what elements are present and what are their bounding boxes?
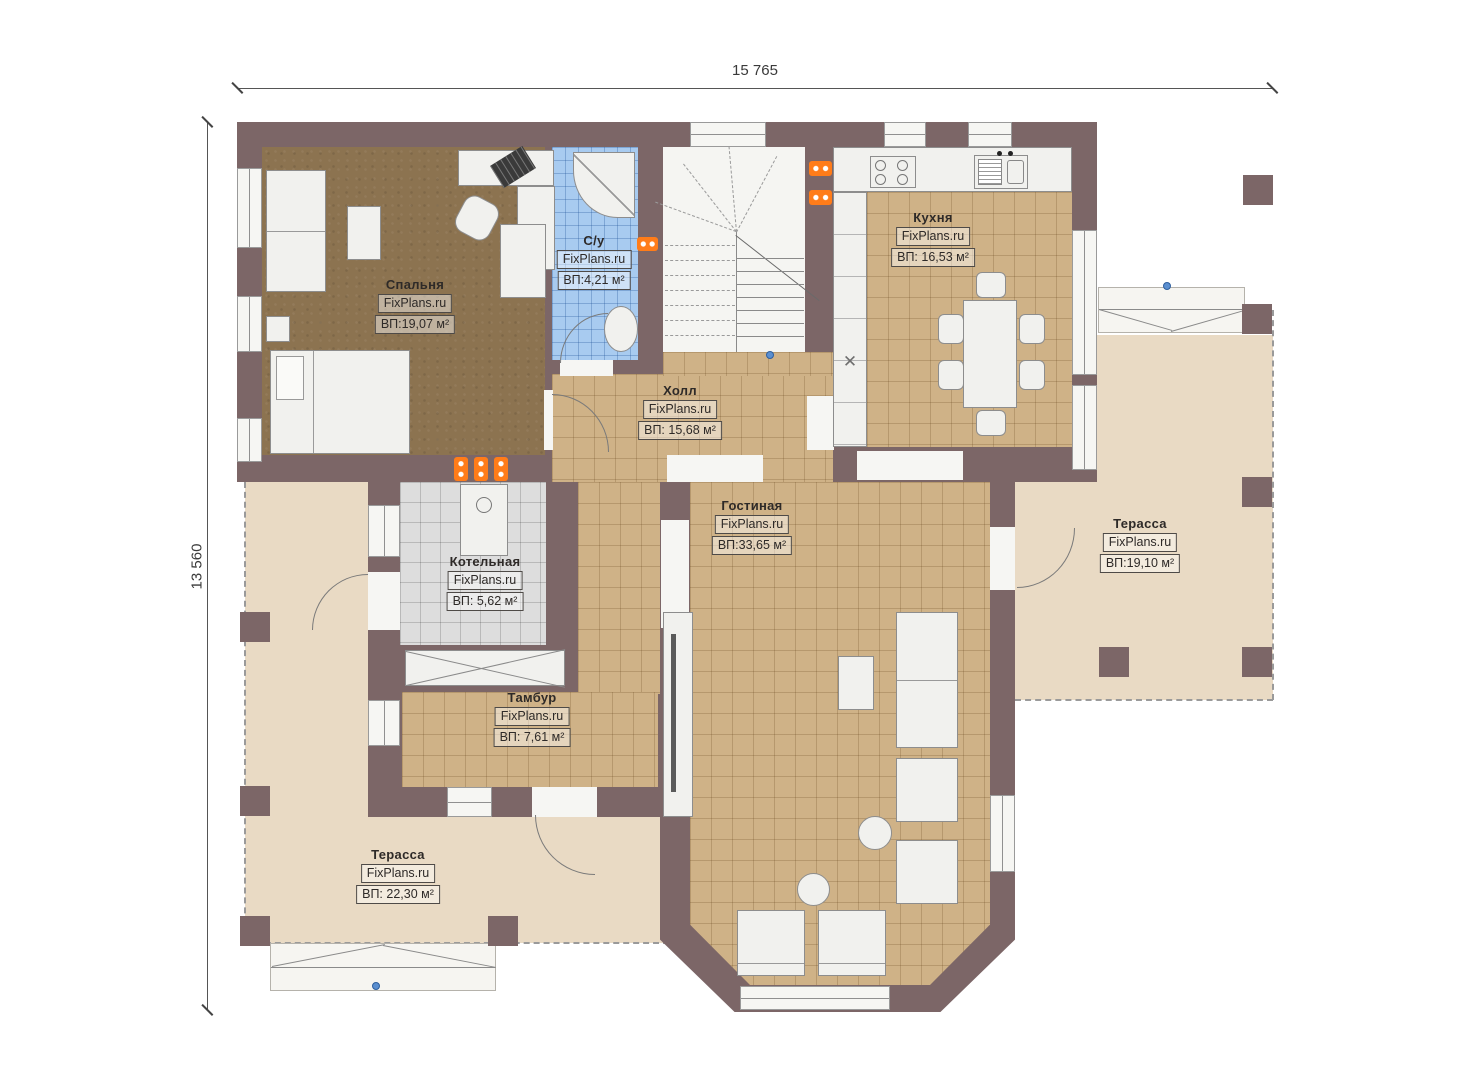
step-line (736, 323, 804, 324)
terrace-left-floor (245, 482, 368, 943)
burner (897, 174, 908, 185)
staircase-steps (663, 147, 805, 352)
pillar (1243, 175, 1273, 205)
room-name: Тамбур (494, 690, 571, 705)
terrace-edge (1272, 310, 1274, 700)
pillar (488, 916, 518, 946)
watermark: FixPlans.ru (557, 250, 632, 269)
opening-hall-kitchen (807, 396, 834, 450)
room-label-bedroom: Спальня FixPlans.ru ВП:19,07 м² (375, 277, 455, 334)
watermark: FixPlans.ru (361, 864, 436, 883)
window (1072, 385, 1097, 470)
room-name: Котельная (447, 554, 524, 569)
boiler-dial (476, 497, 492, 513)
burner (897, 160, 908, 171)
pillar (240, 612, 270, 642)
terrace-steps-east (1098, 287, 1245, 333)
door-opening-terrace (990, 527, 1015, 590)
bed (270, 350, 410, 454)
watermark: FixPlans.ru (643, 400, 718, 419)
dimension-height-label: 13 560 (189, 517, 206, 617)
dining-chair (976, 410, 1006, 436)
sink-bowl (1007, 160, 1024, 184)
room-name: Спальня (375, 277, 455, 292)
table-bedroom (347, 206, 381, 260)
step-line (1099, 309, 1245, 310)
room-area: ВП: 5,62 м² (447, 592, 524, 611)
armchair (737, 910, 805, 976)
window (237, 296, 262, 352)
step-line (383, 945, 496, 968)
window (990, 795, 1015, 872)
pillar (1099, 647, 1129, 677)
room-label-tambour: Тамбур FixPlans.ru ВП: 7,61 м² (494, 690, 571, 747)
step-line (736, 297, 804, 298)
step-line (665, 290, 735, 291)
floor-plan: 15 765 13 560 (0, 0, 1474, 1080)
window (368, 505, 400, 557)
radiator (809, 161, 832, 176)
faucet-dot (997, 151, 1002, 156)
floor-hall-corridor (578, 482, 660, 694)
window (368, 700, 400, 746)
window (690, 122, 766, 147)
wardrobe-bedroom (500, 224, 546, 298)
room-area: ВП:4,21 м² (557, 271, 630, 290)
built-in-wardrobe (405, 650, 565, 686)
kitchen-sink (974, 155, 1028, 189)
sofa-living (896, 612, 958, 748)
winder-line (729, 146, 737, 232)
round-table (797, 873, 830, 906)
bay-window (740, 986, 890, 1010)
stair-divider (736, 232, 737, 352)
step-line (736, 258, 804, 259)
room-name: Гостиная (712, 498, 792, 513)
radiator (454, 457, 468, 481)
room-label-terrace-left: Терасса FixPlans.ru ВП: 22,30 м² (356, 847, 440, 904)
wardrobe-cross-line (406, 649, 565, 686)
burner (875, 174, 886, 185)
pillar (1242, 304, 1272, 334)
pillar (240, 916, 270, 946)
room-label-boiler: Котельная FixPlans.ru ВП: 5,62 м² (447, 554, 524, 611)
wardrobe-cross-line (406, 651, 565, 688)
watermark: FixPlans.ru (378, 294, 453, 313)
marker-dot (766, 351, 774, 359)
step-line (665, 335, 735, 336)
watermark: FixPlans.ru (896, 227, 971, 246)
round-table (858, 816, 892, 850)
room-label-terrace-right: Терасса FixPlans.ru ВП:19,10 м² (1100, 516, 1180, 573)
watermark: FixPlans.ru (448, 571, 523, 590)
armchair (818, 910, 886, 976)
step-line (272, 944, 385, 967)
window (1072, 230, 1097, 375)
dining-chair (1019, 360, 1045, 390)
room-area: ВП:19,07 м² (375, 315, 455, 334)
step-line (665, 245, 735, 246)
room-name: Терасса (1100, 516, 1180, 531)
window (237, 168, 262, 248)
sink-bathroom (604, 306, 638, 352)
opening-hall-living (667, 455, 763, 482)
step-line (271, 967, 495, 968)
dining-chair (938, 314, 964, 344)
dimension-width-label: 15 765 (695, 62, 815, 79)
room-area: ВП: 7,61 м² (494, 728, 571, 747)
dining-chair (938, 360, 964, 390)
step-line (665, 305, 735, 306)
step-line (736, 310, 804, 311)
room-area: ВП:33,65 м² (712, 536, 792, 555)
opening-kitchen-living (857, 451, 963, 480)
dining-chair (1019, 314, 1045, 344)
room-label-living: Гостиная FixPlans.ru ВП:33,65 м² (712, 498, 792, 555)
step-line (1171, 310, 1244, 332)
stove (870, 156, 916, 188)
dining-chair (976, 272, 1006, 298)
room-label-kitchen: Кухня FixPlans.ru ВП: 16,53 м² (891, 210, 975, 267)
armchair (896, 758, 958, 822)
pillar (1242, 647, 1272, 677)
marker-dot (1163, 282, 1171, 290)
step-line (736, 271, 804, 272)
terrace-edge (244, 482, 246, 943)
room-name: С/у (557, 233, 632, 248)
room-name: Холл (638, 383, 722, 398)
tv-screen (671, 634, 676, 792)
step-line (1099, 309, 1172, 331)
side-table (838, 656, 874, 710)
winder-line (736, 156, 777, 232)
room-label-bathroom: С/у FixPlans.ru ВП:4,21 м² (557, 233, 632, 290)
appliance-cross: ✕ (838, 352, 862, 376)
room-name: Кухня (891, 210, 975, 225)
window (968, 122, 1012, 147)
room-area: ВП: 16,53 м² (891, 248, 975, 267)
step-line (736, 284, 804, 285)
pillar (1242, 477, 1272, 507)
radiator (474, 457, 488, 481)
terrace-steps-south (270, 943, 496, 991)
window (447, 787, 492, 817)
radiator (809, 190, 832, 205)
door-opening-entry (532, 787, 597, 817)
watermark: FixPlans.ru (1103, 533, 1178, 552)
marker-dot (372, 982, 380, 990)
step-line (736, 336, 804, 337)
burner (875, 160, 886, 171)
radiator (637, 237, 658, 251)
pillow (276, 356, 304, 400)
drainer (978, 159, 1002, 185)
dimension-line-left (207, 122, 208, 1010)
floor-hall (663, 352, 833, 376)
kitchen-counter-top (833, 147, 1072, 192)
step-line (665, 260, 735, 261)
faucet-dot (1008, 151, 1013, 156)
dimension-line-top (237, 88, 1272, 89)
radiator (494, 457, 508, 481)
terrace-edge (1015, 699, 1273, 701)
kitchen-counter-side (833, 192, 867, 447)
door-opening-boiler (368, 572, 400, 630)
room-name: Терасса (356, 847, 440, 862)
watermark: FixPlans.ru (495, 707, 570, 726)
terrace-right-floor (1015, 482, 1099, 700)
room-area: ВП: 22,30 м² (356, 885, 440, 904)
sofa-bedroom (266, 170, 326, 292)
nightstand (266, 316, 290, 342)
armchair (896, 840, 958, 904)
room-area: ВП:19,10 м² (1100, 554, 1180, 573)
window (884, 122, 926, 147)
pillar (240, 786, 270, 816)
window (237, 418, 262, 462)
tv-unit (663, 612, 693, 817)
room-label-hall: Холл FixPlans.ru ВП: 15,68 м² (638, 383, 722, 440)
watermark: FixPlans.ru (715, 515, 790, 534)
room-area: ВП: 15,68 м² (638, 421, 722, 440)
boiler-unit (460, 484, 508, 556)
dining-table (963, 300, 1017, 408)
blanket-line (313, 351, 314, 453)
step-line (665, 275, 735, 276)
step-line (665, 320, 735, 321)
